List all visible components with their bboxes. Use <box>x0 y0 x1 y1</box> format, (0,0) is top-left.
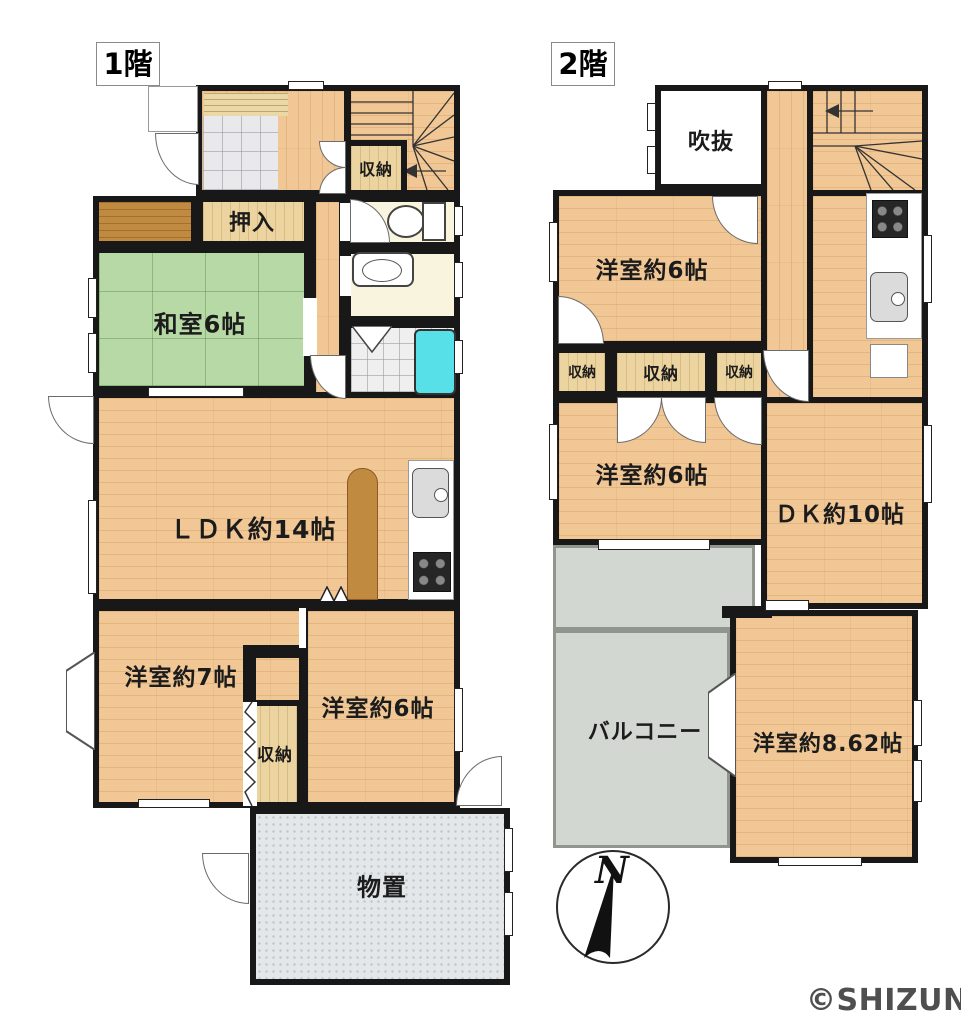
balcony-label: バルコニー <box>588 714 703 746</box>
window-dk-862 <box>765 600 809 611</box>
stove-icon-2f <box>872 200 908 238</box>
kitchen-sink-icon <box>412 468 449 518</box>
yoshitsu6-mid-label: 洋室約6帖 <box>595 456 708 490</box>
window-entrance-top <box>288 81 324 90</box>
window-toilet <box>454 206 463 236</box>
window-corridor-top <box>768 81 802 90</box>
bathtub-icon <box>414 329 456 395</box>
floor2-label: 2階 <box>551 42 615 86</box>
refrigerator-space <box>870 344 908 378</box>
porch-step <box>148 86 198 132</box>
bath-folding-door-icon <box>352 326 392 354</box>
toilet-icon <box>387 205 425 238</box>
watermark: ©SHIZUNAVI <box>806 983 961 1018</box>
window-862-bottom <box>778 857 862 866</box>
partition-wall-v <box>243 645 256 703</box>
window-fukinuke-b <box>647 146 656 174</box>
back-door <box>456 756 502 806</box>
closet-c-label: 収納 <box>725 362 753 382</box>
faucet-icon-2f <box>891 292 905 306</box>
window-yoshitsu6-right <box>454 688 463 752</box>
window-862-right-b <box>913 760 922 802</box>
washroom-sliding-door <box>340 256 351 296</box>
yoshitsu6-1f-label: 洋室約6帖 <box>321 689 434 723</box>
toilet-tank-icon <box>422 202 446 241</box>
stairs-2f-treads <box>813 91 922 190</box>
window-862-right-a <box>913 700 922 746</box>
window-washroom <box>454 262 463 298</box>
folding-partition-icon <box>320 586 348 601</box>
washbasin-bowl <box>362 259 402 282</box>
closet-a-label: 収納 <box>568 362 596 382</box>
board-floor-closet <box>93 196 197 247</box>
ldk-label: ＬＤＫ約14帖 <box>170 510 337 546</box>
accordion-closet-door-icon <box>243 702 257 806</box>
ldk-exterior-door <box>48 396 94 444</box>
entrance-deck-strip <box>204 93 288 116</box>
room-opening <box>299 608 306 648</box>
ldk-room <box>93 392 460 605</box>
stove-icon-1f <box>413 552 451 592</box>
window-dk-right-a <box>923 235 932 303</box>
window-washitsu-a <box>88 278 97 318</box>
washitsu-door-gap <box>303 298 317 356</box>
kitchen-sink-icon-2f <box>870 272 908 322</box>
compass-north-label: N <box>595 848 629 892</box>
window-monooki-a <box>504 828 513 872</box>
balcony-sliding-window <box>598 539 710 550</box>
closet-south-label: 収納 <box>257 741 293 766</box>
window-yoshitsu7-bottom <box>138 799 210 808</box>
floor1-label: 1階 <box>96 42 160 86</box>
fukinuke-label: 吹抜 <box>688 124 734 156</box>
window-monooki-b <box>504 892 513 936</box>
monooki-door <box>202 853 249 904</box>
window-fukinuke-a <box>647 103 656 131</box>
washbasin-icon <box>352 252 414 287</box>
island-partition <box>347 468 378 600</box>
yoshitsu862-label: 洋室約8.62帖 <box>753 726 903 758</box>
faucet-icon <box>434 488 448 502</box>
genkan-tile <box>203 116 278 190</box>
dk-label: ＤＫ約10帖 <box>775 495 905 529</box>
entrance-door <box>155 133 199 185</box>
stairs-2f <box>807 85 928 196</box>
washitsu-label: 和室6帖 <box>154 305 247 340</box>
window-bathroom <box>454 340 463 374</box>
oshiire-label: 押入 <box>229 205 275 237</box>
bay-window-yoshitsu7 <box>66 652 95 750</box>
yoshitsu6-north-label: 洋室約6帖 <box>595 251 708 285</box>
floor-plan: 1階 <box>0 0 961 1024</box>
window-dk-right-b <box>923 425 932 503</box>
bay-window-yoshitsu862 <box>708 673 736 777</box>
closet-b-label: 収納 <box>643 360 679 385</box>
window-yoshitsu6m-left <box>549 424 558 500</box>
window-ldk-left <box>88 500 97 594</box>
stair-closet-label: 収納 <box>359 156 393 180</box>
yoshitsu7-label: 洋室約7帖 <box>124 658 237 692</box>
washitsu-sliding-door <box>148 387 244 397</box>
window-yoshitsu6n-left <box>549 222 558 282</box>
window-washitsu-b <box>88 333 97 373</box>
monooki-label: 物置 <box>357 868 407 903</box>
